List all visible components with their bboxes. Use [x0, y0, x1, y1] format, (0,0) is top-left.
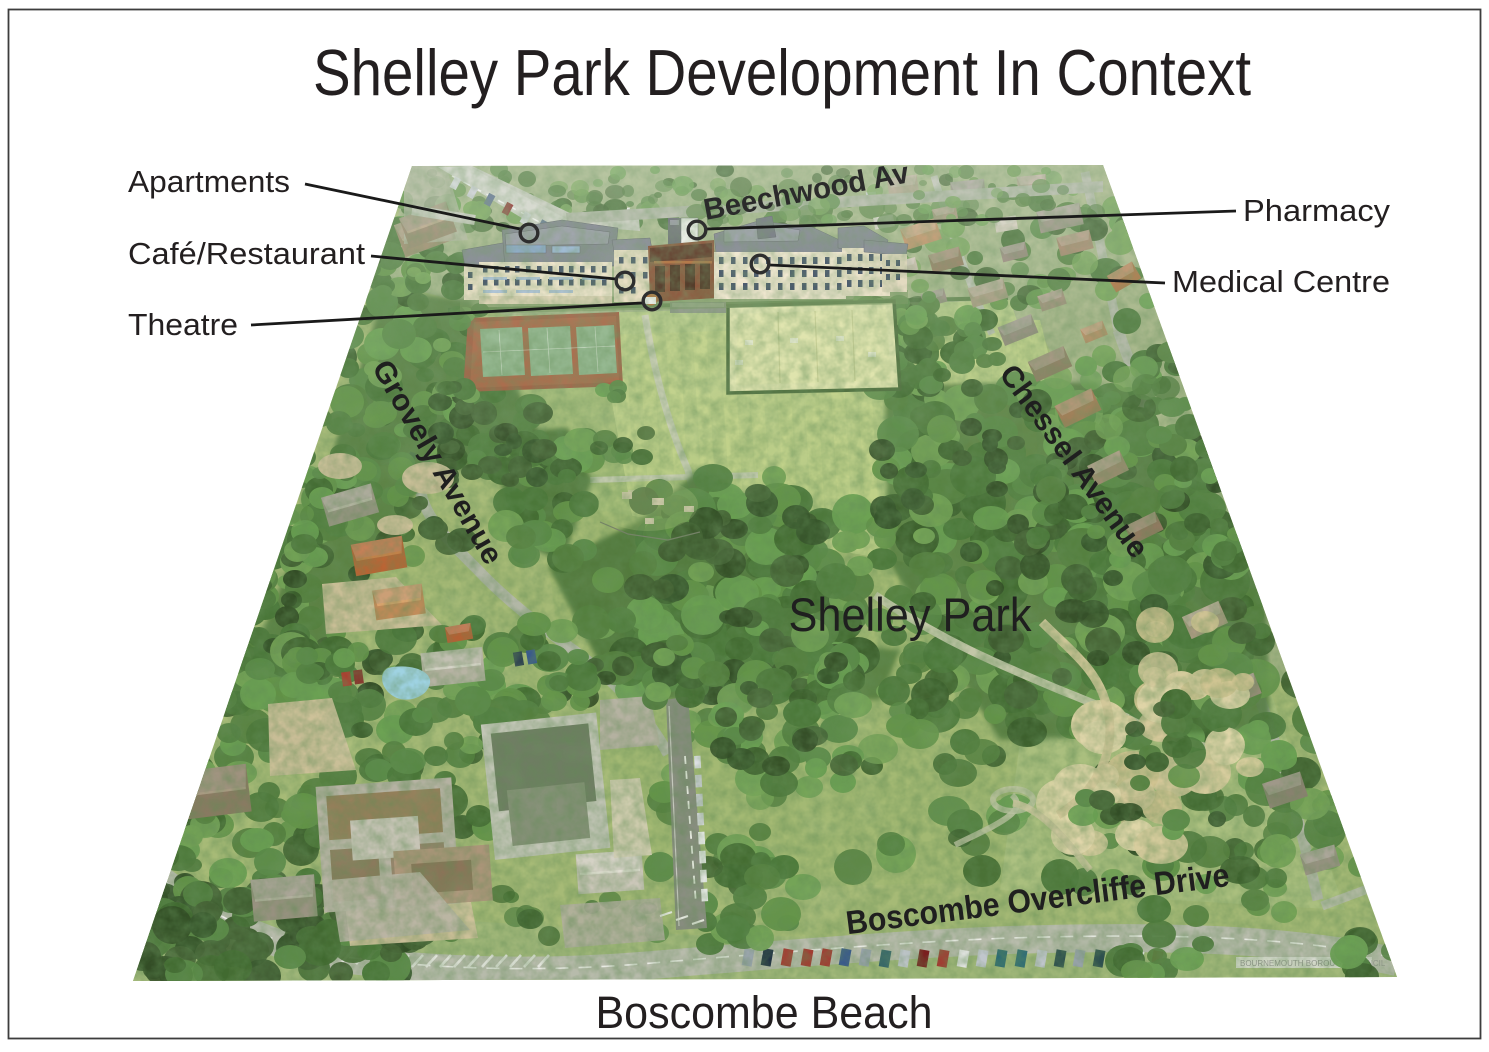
svg-text:Café/Restaurant: Café/Restaurant: [128, 236, 365, 271]
svg-text:Shelley Park: Shelley Park: [789, 588, 1032, 641]
svg-text:Theatre: Theatre: [128, 307, 238, 342]
svg-text:Apartments: Apartments: [128, 164, 290, 199]
svg-text:Boscombe Beach: Boscombe Beach: [596, 987, 933, 1038]
svg-text:Shelley Park Development In Co: Shelley Park Development In Context: [313, 36, 1251, 109]
svg-text:Pharmacy: Pharmacy: [1243, 193, 1391, 228]
svg-text:Medical Centre: Medical Centre: [1172, 264, 1390, 299]
